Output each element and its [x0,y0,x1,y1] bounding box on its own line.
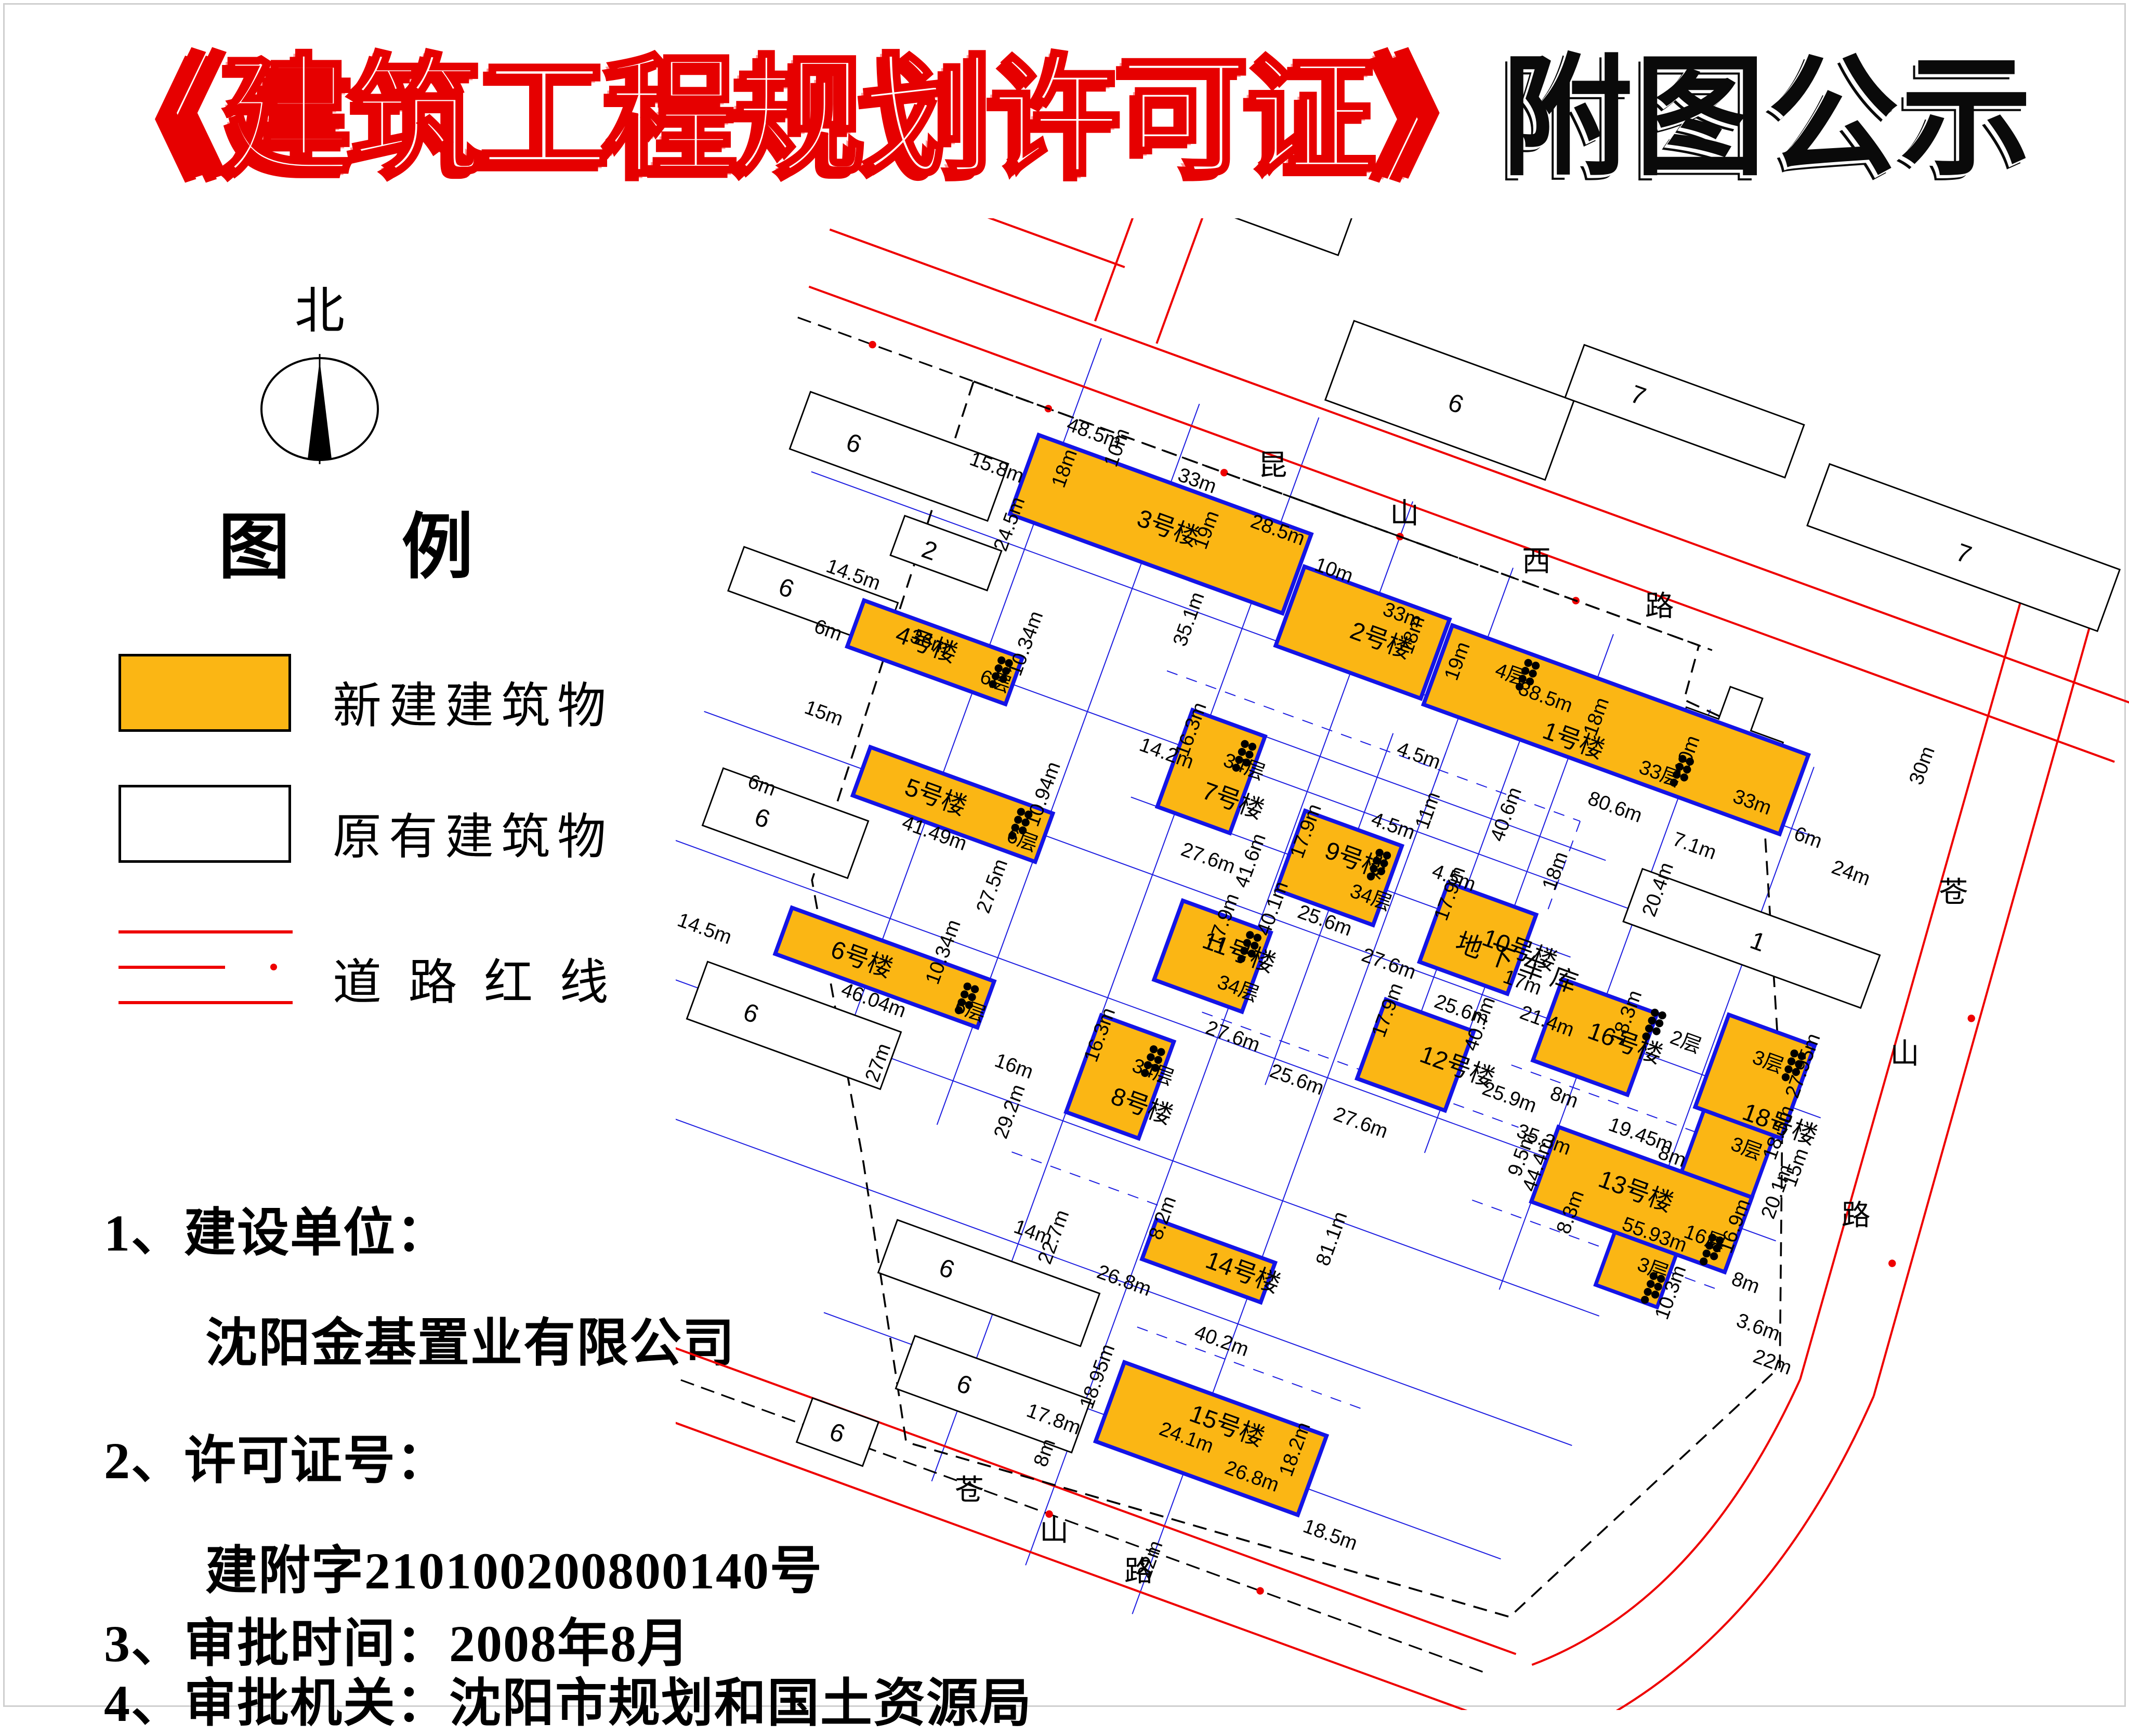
permit-notice-page: { "title": { "bracket_part": "《建筑工程规划许可证… [0,0,2129,1710]
building-floor-label: 10.34m [1004,608,1048,679]
redline-dot [868,340,877,349]
road-name-label: 山 [1890,1037,1920,1070]
new-building: 8号楼34层16.3m [1060,1005,1199,1147]
road-redline-arc [1542,1331,1874,1710]
road-name-label: 苍 [955,1473,984,1506]
new-building: 2号楼18m [1276,567,1449,699]
building-floor-label: 2层 [1667,1026,1704,1058]
road-name-label: 路 [1124,1555,1153,1587]
road-name-label: 路 [1645,589,1674,622]
legend-item-existing-building: 原有建筑物 [119,785,768,873]
dim-label: 29.2m [990,1082,1030,1142]
dim-label: 15m [801,696,846,730]
info-line-2: 2、许可证号： [104,1418,449,1493]
road-name-label: 昆 [1258,449,1287,481]
dim-label: 81.1m [1311,1208,1351,1269]
existing-building: 7 [1565,345,1804,477]
redline-dot [1219,468,1229,477]
dim-label: 35.1m [1169,589,1209,649]
legend-label: 道 路 红 线 [333,943,616,1014]
road-redline [676,1352,1527,1710]
road-redline-swatch [119,926,293,1009]
north-compass: 北 [244,270,395,480]
road-name-label: 山 [1040,1514,1069,1547]
core-dots-icon [1657,1010,1667,1021]
north-label: 北 [244,270,395,343]
existing-building-outline [878,1220,1100,1346]
dim-label: 25.6m [1267,1059,1327,1099]
dim-label: 24m [1829,856,1873,890]
title-permit-part: 《建筑工程规划许可证》 [95,45,1502,191]
dim-label: 30m [1905,743,1939,787]
dim-label: 15m [1779,1146,1813,1190]
redline-dot [1887,1258,1897,1268]
dim-label: 7.1m [1670,828,1719,864]
dim-label: 40.2m [1191,1321,1252,1361]
road-redline [1157,218,1229,344]
road-redline [852,218,1124,267]
dim-label: 27.6m [1359,944,1419,984]
road-name-label: 路 [1842,1199,1871,1231]
legend-label: 新建建筑物 [333,666,613,737]
dim-label: 8m [1547,1082,1581,1113]
dim-label: 27.6m [1203,1016,1263,1056]
new-building: 15号楼24.1m26.8m18.2m [1096,1358,1328,1515]
road-redline-arc [1532,1326,1800,1710]
legend-item-road-redline: 道 路 红 线 [119,926,768,1015]
legend-item-new-building: 新建建筑物 [119,654,768,742]
existing-building-swatch [119,785,291,863]
redline-dot [1966,1014,1976,1023]
road-redline [1817,619,2129,1396]
dim-label: 18.5m [1300,1515,1360,1555]
dim-label: 3.6m [1733,1309,1783,1346]
dim-label: 40.1m [1253,878,1293,939]
legend-label: 原有建筑物 [333,797,613,868]
existing-building-outline [1224,218,1358,255]
site-plan-svg: 62666666677813号楼18m19m2号楼18m1号楼4层33层18m1… [676,218,2129,1710]
dim-label: 40.6m [1486,784,1526,845]
site-plan-map: 62666666677813号楼18m19m2号楼18m1号楼4层33层18m1… [676,218,2129,1710]
existing-building-outline [890,516,1002,590]
legend-title: 图 例 [218,489,520,593]
info-line-1: 1、建设单位： [104,1190,449,1266]
dim-label: 4.5m [1394,738,1444,774]
dim-label: 24.5m [989,494,1029,554]
road-redline [1095,218,1161,321]
road-name-label: 苍 [1939,876,1968,909]
existing-building: 7 [1807,464,2120,632]
dim-label: 6m [1791,822,1825,853]
dim-label: 27.5m [972,856,1012,916]
existing-building [1224,218,1358,255]
new-building: 14号楼8.2m [1136,1193,1295,1306]
building-floor-label: 10.94m [1021,759,1065,830]
existing-building: 6 [896,1336,1090,1453]
dim-label: 27.6m [1178,838,1239,878]
new-building-swatch [119,654,291,732]
road-name-label: 西 [1522,545,1551,577]
north-arrow-icon [244,343,395,478]
info-line-1-value: 沈阳金基置业有限公司 [205,1300,735,1376]
dim-label: 80.6m [1585,787,1645,827]
page-title: 《建筑工程规划许可证》附图公示 [0,46,2129,190]
dim-label: 25.9m [1479,1077,1540,1117]
existing-building-outline [1565,345,1804,477]
dim-label: 16m [992,1049,1036,1083]
existing-building-outline [896,1336,1090,1453]
existing-building: 2 [890,516,1002,590]
dim-label: 8m [1729,1268,1763,1298]
redline-dot [1255,1586,1265,1596]
title-suffix-part: 附图公示 [1502,45,2034,191]
dim-label: 27.6m [1331,1103,1391,1143]
setback-dashed-line [1011,1152,1161,1206]
dim-label: 22m [1750,1345,1794,1379]
road-name-label: 山 [1390,496,1419,529]
existing-building: 6 [878,1220,1100,1346]
existing-building: 6 [797,1398,879,1466]
existing-building-outline [703,768,869,878]
dim-label: 14.5m [676,909,734,949]
road-centerline [676,1329,1489,1674]
plan-rotated-group: 62666666677813号楼18m19m2号楼18m1号楼4层33层18m1… [676,218,2129,1710]
existing-building: 6 [703,768,869,878]
